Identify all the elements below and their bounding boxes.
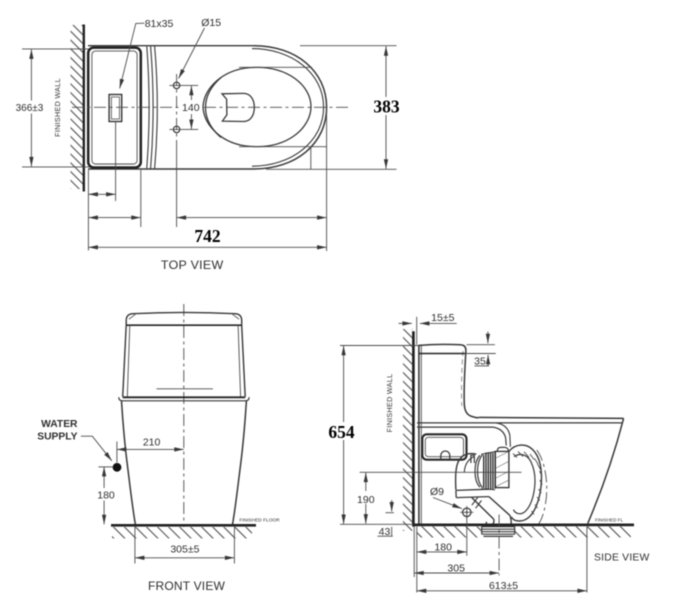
svg-text:Ø9: Ø9 <box>430 486 444 498</box>
svg-text:43: 43 <box>379 526 391 538</box>
svg-text:81x35: 81x35 <box>145 18 174 30</box>
svg-text:383: 383 <box>373 97 400 117</box>
svg-text:FINISHED WALL: FINISHED WALL <box>53 78 62 137</box>
svg-text:FRONT VIEW: FRONT VIEW <box>148 579 226 593</box>
svg-text:TOP VIEW: TOP VIEW <box>161 258 224 272</box>
svg-text:15±5: 15±5 <box>431 312 454 324</box>
svg-text:SUPPLY: SUPPLY <box>37 431 77 442</box>
svg-text:305: 305 <box>447 562 465 574</box>
svg-text:180: 180 <box>97 490 115 502</box>
svg-text:SIDE VIEW: SIDE VIEW <box>594 552 650 563</box>
svg-text:WATER: WATER <box>41 419 78 430</box>
svg-text:140: 140 <box>182 102 200 114</box>
svg-text:654: 654 <box>328 422 355 442</box>
svg-text:613±5: 613±5 <box>489 580 518 592</box>
svg-text:35: 35 <box>474 355 486 367</box>
svg-text:FINISHED FLOOR: FINISHED FLOOR <box>239 517 280 523</box>
svg-text:366±3: 366±3 <box>16 103 44 114</box>
svg-text:190: 190 <box>357 494 375 506</box>
svg-text:210: 210 <box>143 436 161 448</box>
svg-text:305±5: 305±5 <box>170 544 199 556</box>
svg-text:Ø15: Ø15 <box>201 17 221 29</box>
svg-text:742: 742 <box>194 226 220 246</box>
svg-text:180: 180 <box>434 541 452 553</box>
svg-text:FINISHED WALL: FINISHED WALL <box>385 374 394 433</box>
svg-text:FINISHED FL: FINISHED FL <box>595 518 624 523</box>
